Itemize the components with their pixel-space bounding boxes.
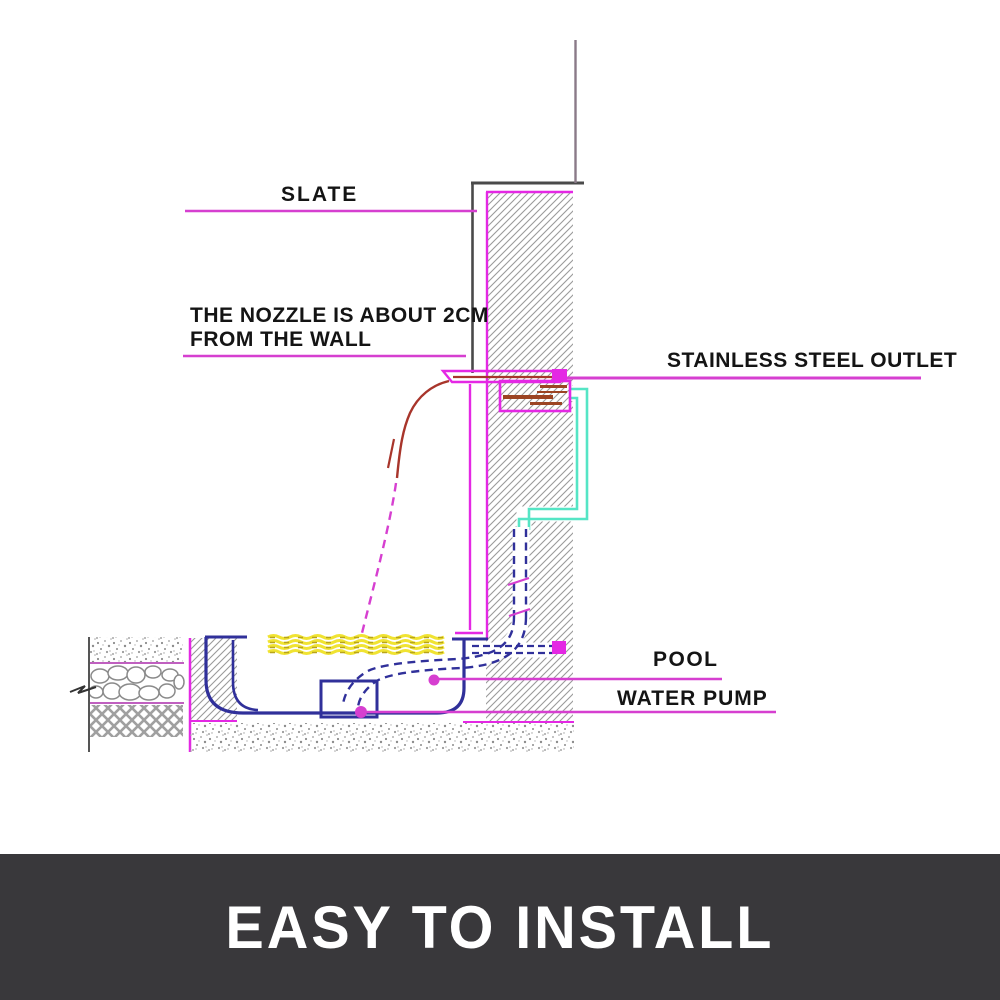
- nozzle-label-line2: FROM THE WALL: [190, 329, 371, 351]
- water-pump-label: WATER PUMP: [617, 688, 768, 710]
- wall-sleeve-marker: [552, 641, 566, 654]
- ground-cross-section: [70, 637, 184, 752]
- pump-pointer-dot: [355, 706, 367, 718]
- falling-water-stream: [362, 381, 449, 633]
- installation-diagram: [0, 0, 1000, 1000]
- pool-label: POOL: [653, 649, 719, 671]
- banner: EASY TO INSTALL: [0, 854, 1000, 1000]
- banner-title: EASY TO INSTALL: [226, 893, 775, 962]
- gravel-stones: [89, 666, 184, 700]
- nozzle-label-line1: THE NOZZLE IS ABOUT 2CM: [190, 305, 489, 327]
- stainless-outlet-label: STAINLESS STEEL OUTLET: [667, 350, 957, 372]
- slate-face-line: [455, 384, 483, 633]
- pool-pointer-dot: [429, 675, 440, 686]
- outlet-marker: [552, 369, 567, 382]
- gravel-footing: [190, 723, 574, 752]
- page: SLATE THE NOZZLE IS ABOUT 2CM FROM THE W…: [0, 0, 1000, 1000]
- slate-label: SLATE: [281, 184, 358, 206]
- pool-water-surface: [268, 636, 446, 654]
